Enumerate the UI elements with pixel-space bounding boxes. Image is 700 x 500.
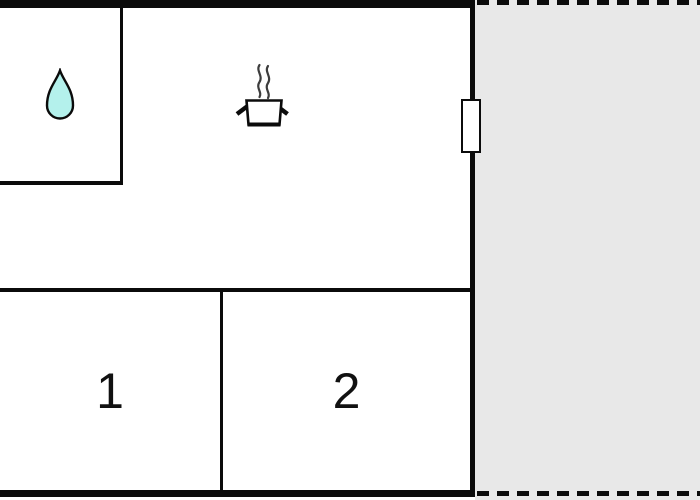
pot-handle-left [237,107,247,115]
room-2-label: 2 [333,366,361,416]
wall-bottom [0,490,475,497]
pot-body [247,101,282,125]
wall-bathroom-right [120,0,123,185]
cooking-pot-icon [230,58,294,135]
room-1-label: 1 [96,366,124,416]
steam-line-right [267,66,269,98]
terrace-dashed-border-bottom [477,491,700,496]
wall-right [470,0,475,497]
steam-line-left [258,65,260,97]
water-drop-icon [43,68,77,127]
room-1: 1 [0,292,220,490]
wall-bathroom-bottom [0,181,123,185]
room-2: 2 [223,292,470,490]
water-drop-shape [47,71,73,119]
terrace-dashed-border-top [477,0,700,5]
door-window [461,99,481,153]
terrace-area [475,0,700,500]
floor-plan: 1 2 [0,0,700,500]
wall-top [0,0,475,8]
